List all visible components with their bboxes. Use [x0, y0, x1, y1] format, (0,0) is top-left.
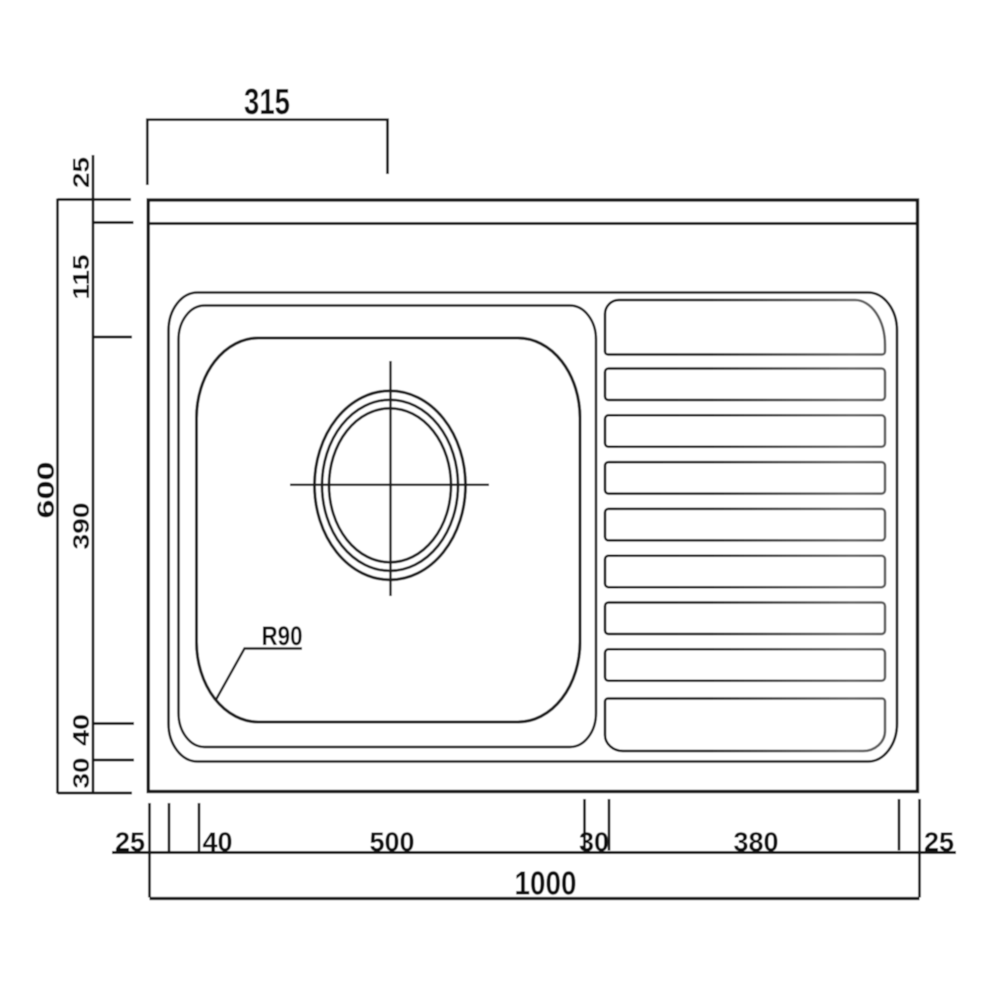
- svg-text:315: 315: [244, 81, 290, 122]
- svg-text:40: 40: [68, 714, 94, 746]
- svg-text:25: 25: [924, 827, 954, 857]
- svg-text:500: 500: [369, 827, 414, 857]
- svg-text:1000: 1000: [515, 865, 577, 902]
- svg-text:30: 30: [579, 827, 609, 857]
- svg-text:25: 25: [115, 827, 145, 857]
- svg-text:600: 600: [33, 462, 60, 519]
- svg-text:40: 40: [202, 827, 232, 857]
- svg-text:390: 390: [68, 503, 94, 550]
- svg-text:380: 380: [733, 827, 778, 857]
- svg-text:115: 115: [68, 255, 94, 300]
- svg-text:R90: R90: [262, 621, 303, 651]
- svg-text:25: 25: [68, 157, 94, 188]
- svg-text:30: 30: [68, 758, 94, 789]
